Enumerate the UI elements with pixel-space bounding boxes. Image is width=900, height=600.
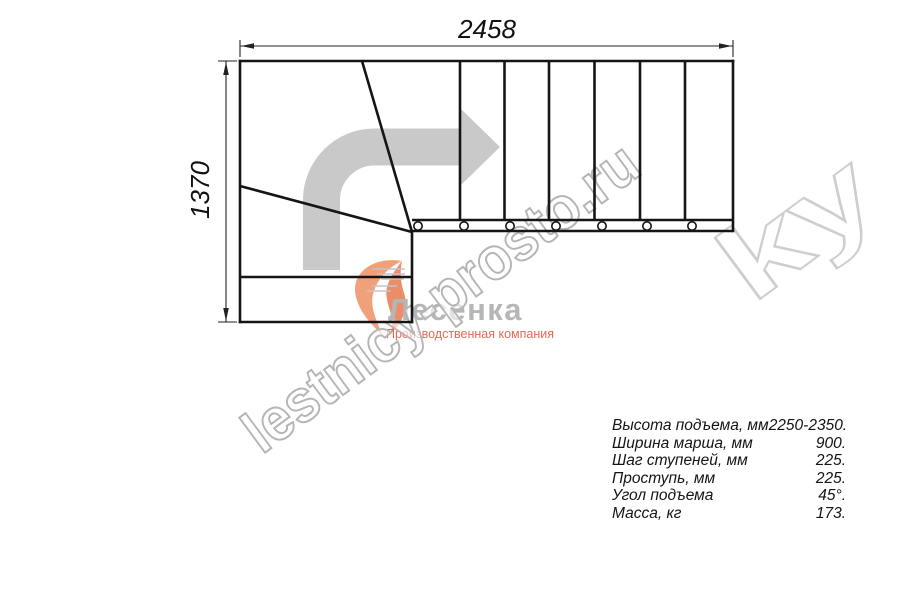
specs-row: Шаг ступеней, мм 225. bbox=[612, 452, 846, 470]
specs-row: Угол подъема 45°. bbox=[612, 487, 846, 505]
spec-value: 225. bbox=[816, 452, 846, 470]
specs-row: Высота подъема, мм 2250-2350. bbox=[612, 417, 846, 435]
arrowhead-left bbox=[241, 43, 254, 49]
spec-value: 2250-2350. bbox=[769, 417, 847, 435]
height-dimension-label: 1370 bbox=[185, 161, 215, 219]
baluster-circle bbox=[552, 222, 560, 230]
specs-row: Ширина марша, мм 900. bbox=[612, 435, 846, 453]
watermark-fragment: ky bbox=[696, 131, 898, 323]
baluster-circle bbox=[643, 222, 651, 230]
spec-value: 45°. bbox=[818, 487, 846, 505]
arrowhead-up bbox=[223, 62, 229, 75]
specs-row: Проступь, мм 225. bbox=[612, 470, 846, 488]
spec-label: Шаг ступеней, мм bbox=[612, 452, 748, 470]
width-dimension-label: 2458 bbox=[457, 14, 516, 44]
spec-value: 173. bbox=[816, 505, 846, 523]
baluster-circle bbox=[414, 222, 422, 230]
spec-label: Масса, кг bbox=[612, 505, 681, 523]
baluster-circle bbox=[598, 222, 606, 230]
spec-label: Угол подъема bbox=[612, 487, 713, 505]
baluster-circle bbox=[506, 222, 514, 230]
baluster-circle bbox=[460, 222, 468, 230]
baluster-circle bbox=[688, 222, 696, 230]
direction-arrow-head bbox=[461, 109, 500, 185]
spec-value: 900. bbox=[816, 435, 846, 453]
watermark-text: lestnicy-prosto.ru bbox=[230, 129, 652, 465]
spec-label: Проступь, мм bbox=[612, 470, 715, 488]
spec-label: Высота подъема, мм bbox=[612, 417, 769, 435]
spec-value: 225. bbox=[816, 470, 846, 488]
spec-label: Ширина марша, мм bbox=[612, 435, 753, 453]
arrowhead-down bbox=[223, 308, 229, 321]
specs-row: Масса, кг 173. bbox=[612, 505, 846, 523]
arrowhead-right bbox=[719, 43, 732, 49]
balusters bbox=[414, 222, 696, 230]
specs-table: Высота подъема, мм 2250-2350. Ширина мар… bbox=[612, 417, 846, 522]
staircase-drawing-page: Лесенка Производственная компания lestni… bbox=[0, 0, 900, 600]
